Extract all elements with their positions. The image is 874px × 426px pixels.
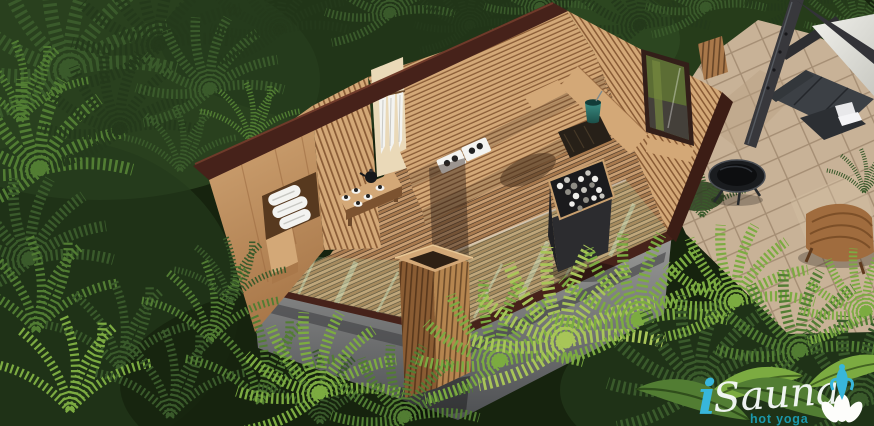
- logo-tagline: hot yoga: [750, 412, 809, 426]
- sauna-scene-render: i Sauna hot yoga: [0, 0, 874, 426]
- lounge-chair: [798, 204, 874, 274]
- fire-pit: [709, 160, 765, 206]
- glass-door: [641, 49, 694, 146]
- hanging-towels: [379, 92, 403, 154]
- render-viewport: i Sauna hot yoga: [0, 0, 874, 426]
